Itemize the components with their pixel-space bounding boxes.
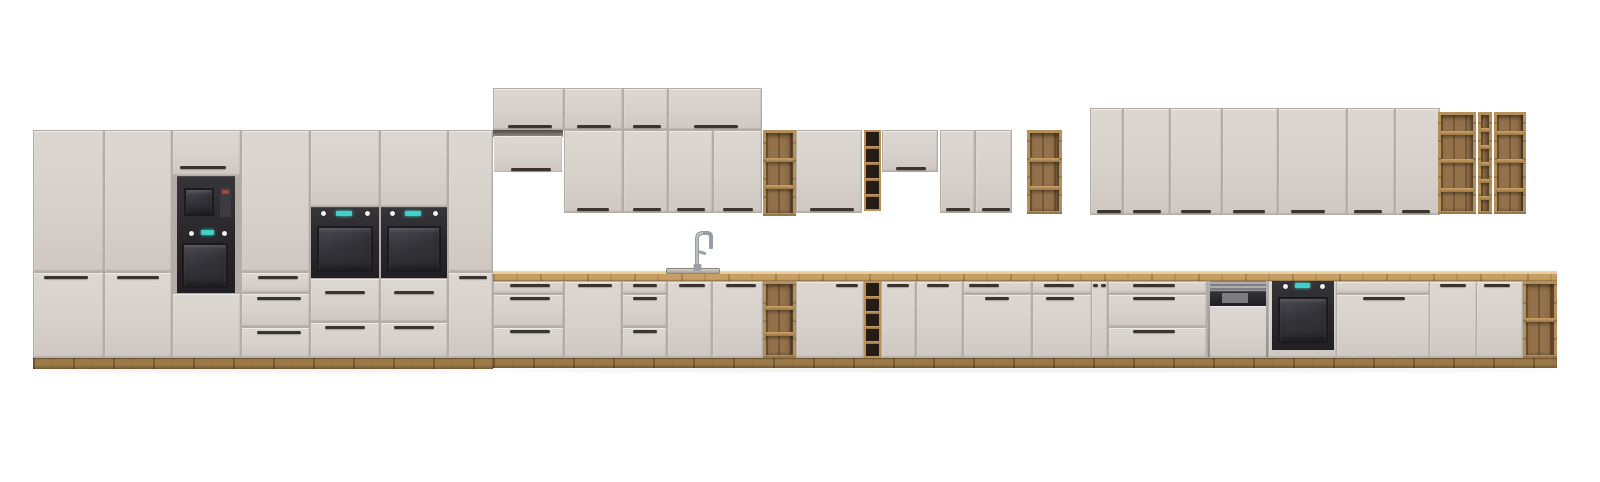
door-handle (459, 276, 487, 279)
oven-knob (1283, 284, 1288, 289)
dishwasher-badge (1222, 293, 1248, 303)
oven-display (201, 230, 214, 235)
door-handle (508, 125, 552, 128)
open-shelf-unit (763, 130, 796, 216)
wall-cabinet-door (669, 131, 712, 212)
drawer-handle (1133, 330, 1175, 333)
door-handle (578, 284, 612, 287)
base-door (1337, 295, 1429, 357)
door-handle (1097, 210, 1121, 213)
faucet (688, 224, 718, 271)
door-handle (946, 208, 970, 211)
tall-door-front (242, 131, 309, 271)
door-handle (836, 284, 858, 287)
wall-cabinet-door (624, 131, 667, 212)
tall-lower-door-front (449, 273, 492, 357)
door-handle (1291, 210, 1325, 213)
kitchen-cabinet-lineup (0, 0, 1600, 482)
open-shelf-unit (1478, 112, 1492, 214)
base-door (565, 282, 621, 357)
door-handle (677, 208, 705, 211)
shelf-board (1481, 196, 1489, 200)
base-door (882, 282, 915, 357)
floor-shadow (493, 368, 1557, 372)
shelf-board (766, 158, 793, 162)
base-door (917, 282, 962, 357)
dishwasher-side-rail (1208, 278, 1210, 357)
open-shelf-unit (1438, 112, 1476, 214)
tall-lower-door-front (173, 294, 240, 357)
door-handle (1402, 210, 1430, 213)
oven-column-top-door (311, 131, 379, 206)
open-shelf-unit (1027, 130, 1062, 214)
drawer-handle (969, 284, 999, 287)
drawer-handle (510, 284, 550, 287)
door-handle (1046, 297, 1074, 300)
shelf-board (1497, 188, 1523, 192)
drawer-handle (1133, 284, 1175, 287)
shelf-board (1030, 158, 1059, 162)
drawer-handle (325, 291, 365, 294)
wine-rack-divider (866, 146, 879, 149)
wall-cabinet-door (1091, 109, 1122, 214)
base-door (964, 295, 1031, 357)
drawer-handle (633, 284, 657, 287)
shelf-interior (1497, 115, 1523, 211)
tall-door-front (34, 131, 103, 271)
door-handle (694, 125, 738, 128)
shelf-board (766, 306, 793, 310)
wine-rack-interior (866, 132, 879, 209)
door-handle (723, 208, 753, 211)
open-shelf-unit (1494, 112, 1526, 214)
door-handle (679, 284, 705, 287)
toe-kick (33, 358, 493, 369)
countertop-edge (493, 274, 1557, 281)
wall-cabinet-door (714, 131, 761, 212)
oven-door-glass (1278, 297, 1328, 343)
door-handle (633, 125, 661, 128)
wine-rack-divider (866, 194, 879, 197)
door-handle (1440, 284, 1466, 287)
wine-rack-divider (866, 178, 879, 181)
door-handle (1181, 210, 1211, 213)
tall-door-front (105, 131, 171, 271)
shelf-interior (766, 284, 793, 355)
shelf-board (1526, 318, 1554, 322)
door-handle (985, 297, 1009, 300)
drawer-handle (394, 291, 434, 294)
microwave-door-glass (184, 188, 214, 216)
wine-rack (864, 130, 881, 211)
tall-lower-door-front (34, 273, 103, 357)
open-shelf-unit (1523, 281, 1557, 358)
oven-knob (222, 231, 227, 236)
door-handle (726, 284, 756, 287)
wall-cabinet-door (797, 131, 861, 212)
top-box-door (494, 89, 563, 129)
oven-display (1295, 283, 1310, 288)
open-shelf-unit (763, 281, 796, 358)
top-box-door (624, 89, 667, 129)
oven-knob (365, 211, 370, 216)
oven-knob (1320, 284, 1325, 289)
shelf-interior (766, 133, 793, 213)
oven-column-top-door (381, 131, 447, 206)
shelf-board (766, 332, 793, 336)
tall-lower-door-front (105, 273, 171, 357)
oven-knob (189, 231, 194, 236)
top-box-door (565, 89, 622, 129)
door-handle (927, 284, 949, 287)
wall-cabinet-door (1279, 109, 1346, 214)
wall-cabinet-door (941, 131, 974, 212)
door-handle (633, 208, 661, 211)
door-handle (117, 276, 159, 279)
drawer-front (311, 279, 379, 321)
door-handle (887, 284, 909, 287)
tall-door-front (449, 131, 492, 271)
door-handle (577, 125, 611, 128)
wine-rack-divider (866, 326, 879, 329)
filler-panel (1092, 282, 1107, 357)
wine-rack-divider (866, 341, 879, 344)
wall-cabinet-door (1124, 109, 1169, 214)
oven-knob (433, 211, 438, 216)
filler-mark (1101, 284, 1106, 287)
wall-cabinet-door (494, 136, 562, 172)
shelf-board (1497, 159, 1523, 163)
wine-rack-divider (866, 296, 879, 299)
wine-rack-divider (866, 162, 879, 165)
oven-knob (321, 211, 326, 216)
oven-door-glass (387, 226, 441, 272)
drawer-handle (257, 331, 301, 334)
oven-knob (390, 211, 395, 216)
dishwasher-side-rail (1266, 278, 1268, 357)
door-handle (44, 276, 88, 279)
wine-rack-interior (866, 283, 879, 356)
shelf-board (1497, 131, 1523, 135)
drawer-handle (510, 297, 550, 300)
door-handle (810, 208, 854, 211)
wall-cabinet-door (565, 131, 622, 212)
wall-cabinet-door (1171, 109, 1221, 214)
base-door (797, 282, 863, 357)
shelf-board (766, 185, 793, 189)
shelf-interior (1030, 133, 1059, 211)
shelf-board (1481, 179, 1489, 183)
door-handle (982, 208, 1010, 211)
wall-cabinet-door (1396, 109, 1439, 214)
drawer-handle (258, 276, 298, 279)
base-door (1430, 282, 1476, 357)
oven-door-glass (317, 226, 373, 272)
drawer-handle (257, 297, 301, 300)
drawer-handle (510, 330, 550, 333)
wall-cabinet-door (1223, 109, 1277, 214)
door-handle (180, 166, 226, 169)
wall-cabinet-door (883, 131, 937, 171)
drawer-handle (633, 330, 657, 333)
door-handle (1363, 297, 1405, 300)
shelf-board (1481, 162, 1489, 166)
base-door (1033, 295, 1091, 357)
shelf-board (1481, 128, 1489, 132)
door-handle (1354, 210, 1382, 213)
door-handle (1133, 210, 1161, 213)
oven-door-glass (182, 243, 228, 288)
door-handle (511, 168, 551, 171)
door-handle (1233, 210, 1265, 213)
dishwasher-front-panel (1208, 306, 1268, 357)
sink-base-door (668, 282, 711, 357)
oven-display (405, 211, 421, 216)
drawer-front (381, 279, 447, 321)
door-handle (896, 167, 926, 170)
filler-mark (1093, 284, 1098, 287)
shelf-interior (1441, 115, 1473, 211)
shelf-board (1481, 145, 1489, 149)
top-box-door (669, 89, 761, 129)
oven-display (336, 211, 352, 216)
base-door (1477, 282, 1522, 357)
door-handle (1484, 284, 1510, 287)
door-handle (577, 208, 609, 211)
shelf-board (1441, 131, 1473, 135)
microwave-display (222, 190, 229, 194)
shelf-board (1030, 186, 1059, 190)
wall-cabinet-door (976, 131, 1011, 212)
drawer-handle (633, 297, 657, 300)
wine-rack-divider (866, 311, 879, 314)
base-door (713, 282, 762, 357)
drawer-handle (1044, 284, 1074, 287)
shelf-board (1441, 159, 1473, 163)
shelf-board (1441, 188, 1473, 192)
floor-shadow (33, 369, 493, 373)
drawer-handle (325, 326, 365, 329)
drawer-handle (1133, 297, 1175, 300)
wall-cabinet-door (1348, 109, 1394, 214)
wine-rack (864, 281, 881, 358)
drawer-front (1337, 282, 1429, 293)
drawer-handle (394, 326, 434, 329)
toe-kick (493, 358, 1557, 368)
